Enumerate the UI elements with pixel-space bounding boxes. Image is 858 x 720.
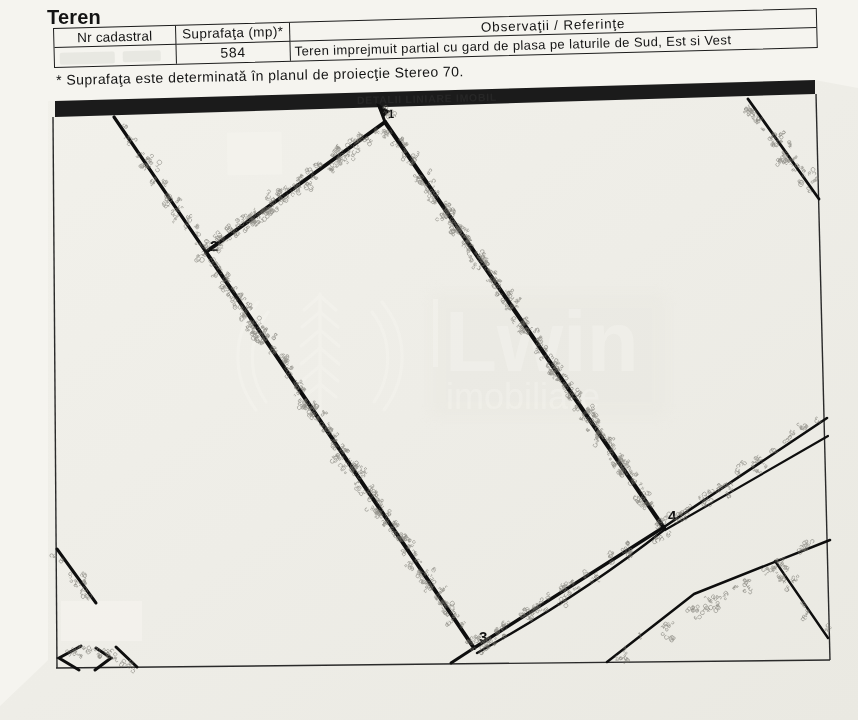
svg-text:Lwin: Lwin — [445, 294, 639, 389]
